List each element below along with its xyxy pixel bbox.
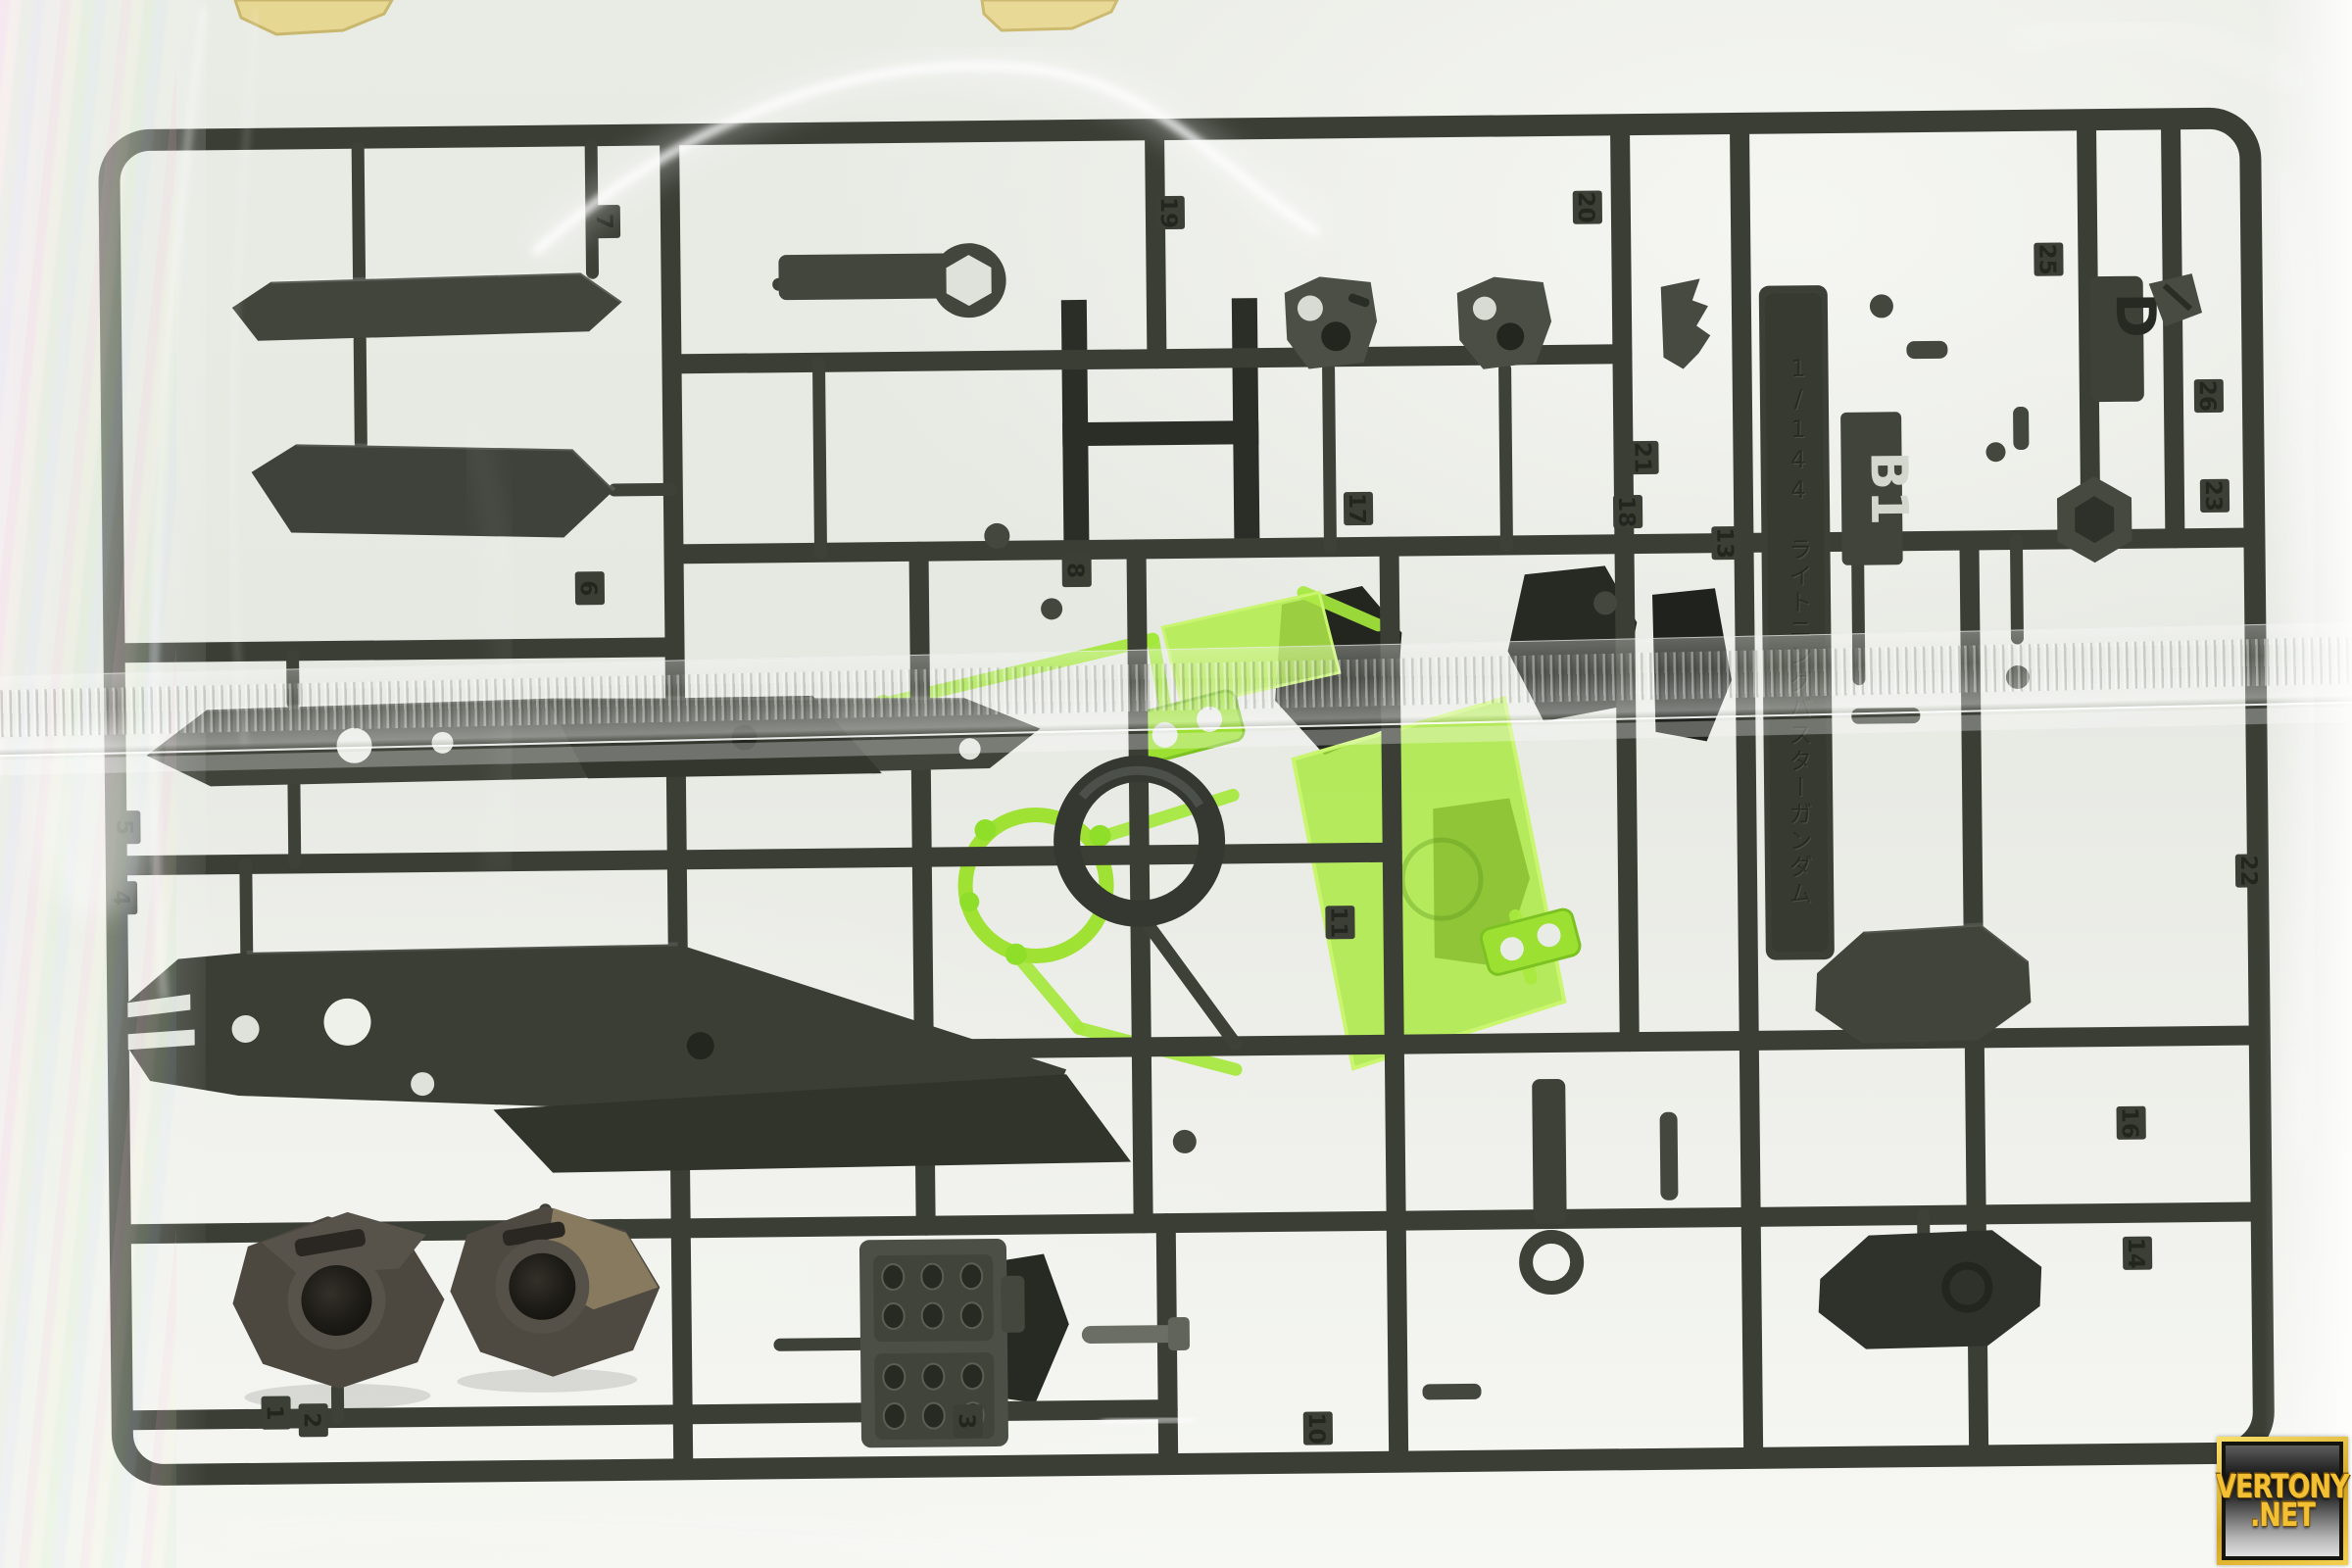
part-number-tab: 21 (1629, 441, 1658, 474)
watermark-panel: VERTONY .NET (2226, 1445, 2339, 1556)
part-claw (1661, 278, 1711, 369)
part-hexagon (2057, 476, 2132, 563)
watermark-badge: VERTONY .NET (2217, 1437, 2348, 1565)
bag-edge-highlight (2264, 0, 2352, 1568)
yellow-part-right (982, 0, 1117, 30)
svg-text:3: 3 (954, 1413, 979, 1429)
sprue-scene: B1 D 1 2 3 4 5 6 7 8 (0, 0, 2352, 1568)
svg-text:16: 16 (2117, 1107, 2142, 1139)
part-number-tab: 3 (954, 1404, 983, 1438)
part-number-tab: 26 (2194, 379, 2224, 413)
part-oval-shield (1818, 1230, 2042, 1349)
part-number-tab: 1 (261, 1396, 290, 1429)
green-panel-large (1293, 698, 1565, 1069)
svg-text:7: 7 (591, 214, 616, 229)
watermark-frame: VERTONY .NET (2222, 1442, 2343, 1560)
svg-text:2: 2 (299, 1412, 324, 1428)
svg-text:25: 25 (2033, 244, 2059, 275)
svg-text:19: 19 (1155, 197, 1181, 228)
part-number-tab: 8 (1062, 554, 1092, 587)
part-number-tab: 2 (299, 1403, 328, 1437)
part-number-tab: 22 (2235, 854, 2265, 887)
photo-model-kit-bag: B1 D 1 2 3 4 5 6 7 8 (0, 0, 2352, 1568)
svg-text:8: 8 (1062, 563, 1088, 578)
part-oval-shield (1815, 924, 2032, 1044)
part-number-tab: 17 (1344, 492, 1373, 525)
part-number-tab: 18 (1613, 495, 1642, 528)
part-number-tab: 16 (2116, 1106, 2145, 1140)
part-number-tab: 10 (1303, 1411, 1333, 1445)
part-long-blade (127, 940, 1131, 1178)
svg-text:14: 14 (2123, 1238, 2148, 1269)
svg-text:17: 17 (1344, 493, 1369, 524)
svg-text:18: 18 (1613, 496, 1639, 527)
part-number-tab: 6 (575, 571, 605, 605)
runner-name-plate-text: 1/144 ライトニングバスターガンダム (1770, 310, 1827, 953)
part-number-tab: 25 (2033, 242, 2063, 275)
watermark-line2: .NET (2250, 1499, 2315, 1532)
yellow-part-left (235, 0, 392, 34)
svg-text:13: 13 (1711, 527, 1737, 559)
part-number-tab: 11 (1325, 906, 1354, 939)
svg-text:11: 11 (1325, 906, 1350, 938)
runner-code-text: B1 (1858, 451, 1918, 525)
part-number-tab: 7 (591, 205, 620, 238)
svg-text:20: 20 (1573, 191, 1598, 222)
svg-text:22: 22 (2235, 855, 2261, 886)
svg-text:23: 23 (2200, 480, 2226, 512)
yellow-runner-parts (235, 0, 1117, 34)
part-number-tab: 20 (1573, 190, 1602, 223)
part-wrench (778, 243, 1006, 319)
svg-text:21: 21 (1629, 442, 1654, 473)
part-number-tab: 14 (2123, 1237, 2152, 1270)
part-number-tab: 19 (1155, 196, 1185, 229)
part-number-tab: 23 (2200, 479, 2229, 513)
svg-text:10: 10 (1303, 1412, 1329, 1444)
svg-text:26: 26 (2194, 380, 2220, 412)
part-t-bar (1082, 1317, 1190, 1351)
svg-text:6: 6 (575, 580, 601, 596)
part-number-tab: 13 (1711, 526, 1740, 560)
bag-iridescent-stripes (0, 0, 176, 1568)
mold-letter-plate: D (2090, 273, 2203, 402)
part-blade (251, 441, 614, 541)
svg-text:1: 1 (262, 1405, 287, 1421)
part-vent-block (859, 1239, 1026, 1448)
sprue-frame-b1: B1 D 1 2 3 4 5 6 7 8 (100, 118, 2271, 1475)
